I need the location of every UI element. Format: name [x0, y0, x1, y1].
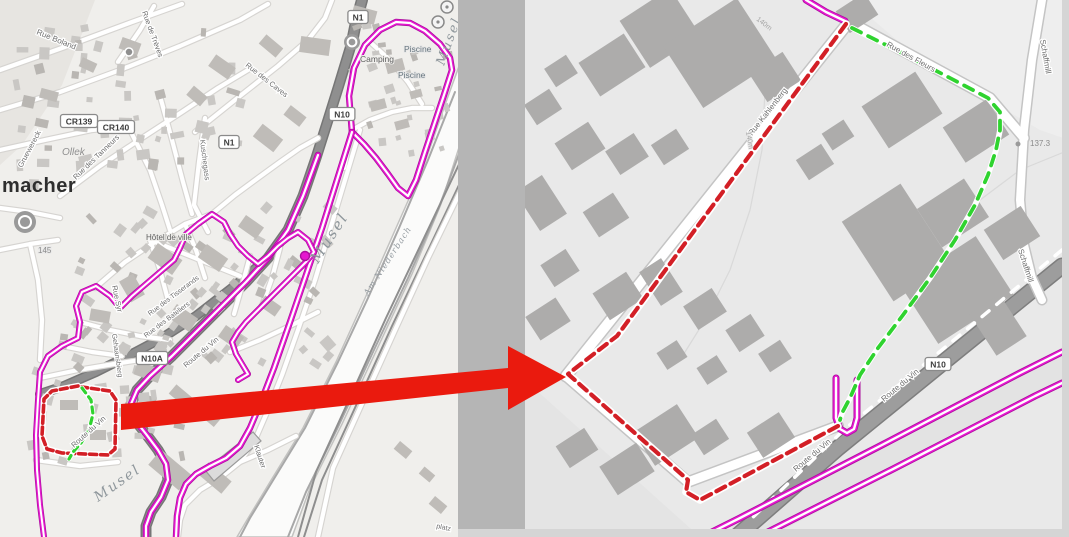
building [86, 97, 92, 103]
building [116, 64, 125, 77]
building [138, 392, 150, 402]
building [124, 91, 131, 101]
road-ref-text: N1 [353, 12, 364, 22]
building [136, 149, 151, 161]
building [201, 28, 207, 37]
building [17, 47, 29, 52]
building [80, 24, 89, 32]
building [378, 138, 386, 147]
building [39, 47, 50, 60]
map-comparison-svg: macherRue BolandRue de TrèvesRue des Cav… [0, 0, 1069, 537]
building [148, 158, 159, 170]
mini-roundabout-icon [125, 48, 133, 56]
building [177, 157, 184, 164]
roundabout-icon [344, 34, 360, 50]
map-label: macher [2, 175, 76, 197]
building [60, 400, 78, 410]
building [408, 150, 415, 157]
map-label: Camping [360, 54, 394, 64]
road-ref-text: CR139 [66, 116, 93, 126]
building [133, 115, 139, 121]
map-label: 145 [38, 246, 52, 255]
map-label: Ollek [62, 147, 86, 158]
building [160, 341, 168, 347]
poi-ring-dot [445, 5, 448, 8]
overview-map[interactable]: macherRue BolandRue de TrèvesRue des Cav… [0, 0, 468, 537]
detail-map[interactable]: Rue des FleursRue KahlenbergSchaffmillSc… [515, 0, 1069, 537]
building [116, 149, 124, 161]
road-ref-text: CR140 [103, 122, 130, 132]
building [136, 134, 145, 144]
roundabout-icon [14, 211, 36, 233]
right-edge-strip [1062, 0, 1069, 537]
road-ref-text: N10 [930, 359, 946, 369]
building [71, 71, 79, 79]
map-label: Piscine [398, 70, 426, 80]
building [18, 125, 26, 133]
map-divider [458, 0, 525, 537]
building [60, 333, 68, 341]
road-ref-text: N1 [224, 137, 235, 147]
bottom-edge-strip [458, 529, 1069, 537]
poi-ring-dot [436, 20, 439, 23]
screenshot-stage: macherRue BolandRue de TrèvesRue des Cav… [0, 0, 1069, 537]
spot-elevation-dot [1016, 142, 1021, 147]
building [120, 385, 130, 394]
building [45, 145, 53, 151]
road-ref-text: N10A [141, 353, 163, 363]
building [107, 160, 118, 169]
road-ref-text: N10 [334, 109, 350, 119]
building [134, 433, 142, 439]
map-label: Hôtel de ville [146, 233, 192, 242]
map-label: Piscine [404, 44, 432, 54]
building [165, 108, 177, 117]
building [161, 127, 167, 134]
building [37, 159, 49, 167]
route-waypoint-dot [301, 252, 310, 261]
map-label: 137.3 [1030, 139, 1051, 148]
